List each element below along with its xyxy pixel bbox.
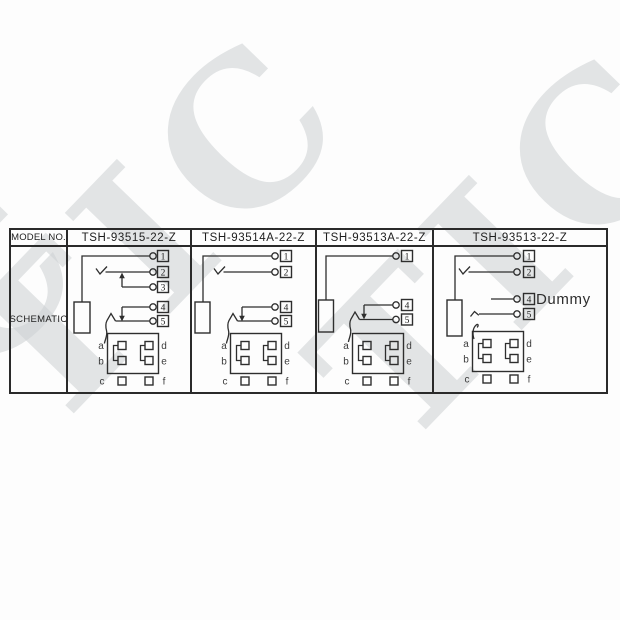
terminal-4-contact	[150, 304, 156, 310]
pad-c	[363, 377, 371, 385]
pad-label-d: d	[526, 339, 532, 350]
model-name-cell-3: TSH-93513A-22-Z	[317, 230, 434, 247]
pad-label-e: e	[161, 357, 167, 368]
pad-f	[268, 377, 276, 385]
model-schematic-table: MODEL NO. TSH-93515-22-Z TSH-93514A-22-Z…	[9, 228, 608, 394]
pad-label-d: d	[406, 341, 412, 352]
pad-label-f: f	[408, 377, 411, 388]
terminal-2-contact	[514, 269, 520, 275]
terminal-2-label: 2	[161, 269, 166, 279]
pad-a	[118, 342, 126, 350]
terminal-1-label: 1	[527, 253, 532, 263]
terminal-1-wire	[326, 256, 393, 300]
terminal-5-label: 5	[284, 318, 289, 328]
terminal-5-label: 5	[405, 316, 410, 326]
dummy-label: Dummy	[536, 291, 591, 308]
schematic-3: 1 4 5	[317, 247, 432, 392]
arrow-down-icon	[361, 314, 367, 320]
terminal-3-label: 3	[161, 284, 166, 294]
terminal-5-contact	[150, 318, 156, 324]
footprint-outline	[231, 334, 282, 374]
terminal-5-label: 5	[161, 318, 166, 328]
pad-e	[390, 357, 398, 365]
model-name-cell-1: TSH-93515-22-Z	[68, 230, 192, 247]
pad-a	[483, 340, 491, 348]
arrow-up-icon	[119, 273, 125, 279]
model-name-cell-2: TSH-93514A-22-Z	[192, 230, 317, 247]
tip-spring-icon	[226, 314, 237, 344]
jack-body	[319, 300, 334, 332]
pad-label-f: f	[286, 377, 289, 388]
jack-body	[447, 300, 462, 336]
schematic-2: 1 2 4 5	[192, 247, 315, 392]
terminal-4-label: 4	[161, 304, 166, 314]
pad-label-a: a	[463, 339, 469, 350]
pad-label-c: c	[100, 377, 105, 388]
pad-label-d: d	[284, 341, 290, 352]
pad-label-b: b	[98, 357, 104, 368]
jack-body	[74, 302, 90, 333]
terminal-4-label: 4	[284, 304, 289, 314]
terminal-1-contact	[150, 253, 156, 259]
pad-label-a: a	[98, 341, 104, 352]
pad-label-c: c	[223, 377, 228, 388]
terminal-5-contact	[393, 316, 399, 322]
pad-label-b: b	[463, 355, 469, 366]
pad-label-b: b	[343, 357, 349, 368]
pad-c	[483, 375, 491, 383]
pad-c	[241, 377, 249, 385]
terminal-1-wire	[203, 256, 272, 302]
check-contact-icon	[214, 267, 225, 275]
terminal-4-contact	[272, 304, 278, 310]
schematic-4: 1 2 4 Dummy 5	[434, 247, 606, 392]
pcb-footprint: a b d e c f	[343, 334, 412, 388]
check-contact-icon	[459, 267, 470, 275]
footprint-outline	[473, 332, 524, 372]
pad-b	[241, 357, 249, 365]
pad-f	[390, 377, 398, 385]
pcb-footprint: a b d e c f	[463, 332, 532, 386]
pad-b	[483, 355, 491, 363]
terminal-2-label: 2	[527, 269, 532, 279]
schematic-cell-4: 1 2 4 Dummy 5	[434, 247, 606, 392]
pad-label-e: e	[526, 355, 532, 366]
tip-spring-icon	[348, 312, 359, 342]
pad-d	[390, 342, 398, 350]
pad-label-b: b	[221, 357, 227, 368]
terminal-5-contact	[272, 318, 278, 324]
datasheet-page: TIC TIC TIC MODEL NO. TSH-93515-22-Z TSH…	[0, 0, 620, 620]
check-contact-icon	[96, 267, 107, 275]
ring-contact-icon	[471, 312, 479, 317]
terminal-4-contact	[393, 302, 399, 308]
terminal-2-contact	[272, 269, 278, 275]
pad-label-e: e	[284, 357, 290, 368]
terminal-4-label: 4	[527, 296, 532, 306]
terminal-1-label: 1	[284, 253, 289, 263]
terminal-5-contact	[514, 311, 520, 317]
model-name-2: TSH-93514A-22-Z	[202, 232, 305, 244]
pad-b	[363, 357, 371, 365]
pad-e	[268, 357, 276, 365]
model-no-header-cell: MODEL NO.	[11, 230, 68, 247]
pad-c	[118, 377, 126, 385]
model-no-header-label: MODEL NO.	[11, 232, 66, 243]
pad-label-e: e	[406, 357, 412, 368]
terminal-1-label: 1	[405, 253, 410, 263]
pad-b	[118, 357, 126, 365]
terminal-3-contact	[150, 284, 156, 290]
model-name-4: TSH-93513-22-Z	[473, 232, 568, 244]
pad-f	[145, 377, 153, 385]
terminal-2-label: 2	[284, 269, 289, 279]
schematic-cell-2: 1 2 4 5	[192, 247, 317, 392]
pad-label-f: f	[528, 375, 531, 386]
pcb-footprint: a b d e c f	[221, 334, 290, 388]
pad-d	[145, 342, 153, 350]
terminal-4-contact	[514, 296, 520, 302]
schematic-cell-3: 1 4 5	[317, 247, 434, 392]
terminal-1-contact	[393, 253, 399, 259]
pad-e	[510, 355, 518, 363]
terminal-1-label: 1	[161, 253, 166, 263]
terminal-4-label: 4	[405, 302, 410, 312]
pad-label-a: a	[221, 341, 227, 352]
pcb-footprint: a b d e c f	[98, 334, 167, 388]
terminal-5-label: 5	[527, 311, 532, 321]
schematic-row-label: SCHEMATIC	[10, 314, 68, 325]
pad-label-a: a	[343, 341, 349, 352]
terminal-1-contact	[272, 253, 278, 259]
pad-a	[241, 342, 249, 350]
schematic-row-label-cell: SCHEMATIC	[11, 247, 68, 392]
pad-label-c: c	[345, 377, 350, 388]
model-name-1: TSH-93515-22-Z	[82, 232, 177, 244]
tip-spring-icon	[104, 314, 115, 344]
pad-label-c: c	[465, 375, 470, 386]
terminal-1-wire	[82, 256, 150, 302]
pad-e	[145, 357, 153, 365]
pad-a	[363, 342, 371, 350]
model-name-3: TSH-93513A-22-Z	[323, 232, 426, 244]
schematic-1: 1 2 3 4 5	[68, 247, 190, 392]
pad-d	[268, 342, 276, 350]
terminal-2-contact	[150, 269, 156, 275]
pad-d	[510, 340, 518, 348]
terminal-1-contact	[514, 253, 520, 259]
pad-label-d: d	[161, 341, 167, 352]
footprint-outline	[108, 334, 159, 374]
footprint-outline	[353, 334, 404, 374]
schematic-cell-1: 1 2 3 4 5	[68, 247, 192, 392]
model-name-cell-4: TSH-93513-22-Z	[434, 230, 606, 247]
pad-label-f: f	[163, 377, 166, 388]
jack-body	[195, 302, 210, 333]
pad-f	[510, 375, 518, 383]
terminal-1-wire	[455, 256, 514, 300]
